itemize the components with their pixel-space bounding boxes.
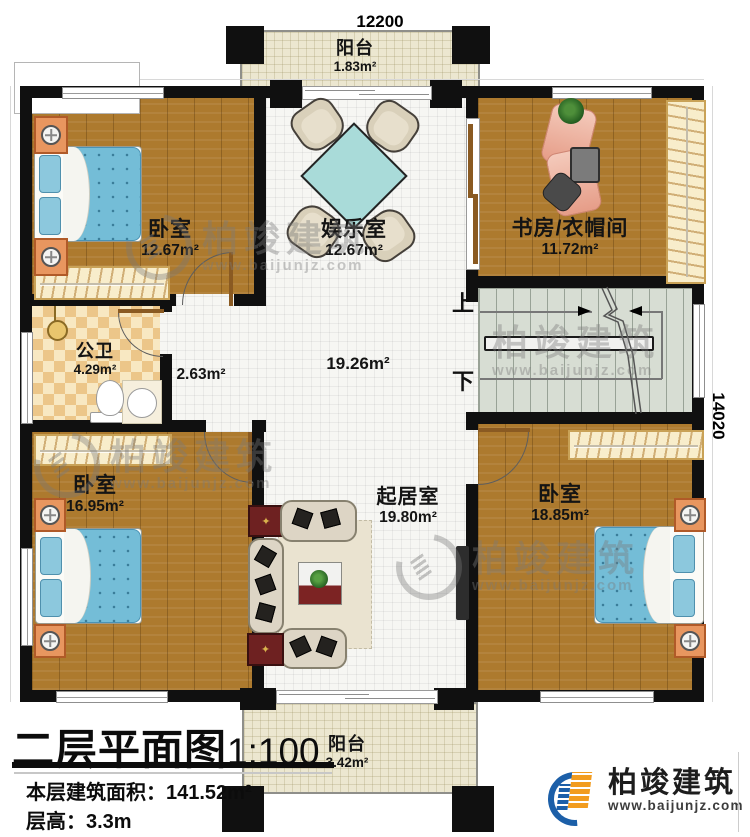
room-area: 12.67m² — [141, 242, 199, 260]
room-label-study: 书房/衣帽间 11.72m² — [512, 217, 629, 259]
column — [452, 786, 494, 832]
wardrobe — [34, 434, 172, 466]
floor-area-value: 141.52m² — [166, 782, 252, 804]
lamp-icon — [40, 631, 60, 651]
room-name: 书房/衣帽间 — [512, 217, 629, 241]
window — [552, 87, 652, 99]
window — [56, 691, 168, 703]
pillow — [39, 197, 61, 235]
dimension-right: 14020 — [708, 366, 728, 466]
pillow — [40, 579, 62, 617]
wall-segment — [254, 86, 266, 306]
toilet — [96, 380, 124, 416]
sofa-single — [280, 628, 347, 669]
room-label-hall: 19.26m² — [326, 354, 389, 374]
door-leaf — [478, 428, 530, 432]
door-leaf — [473, 194, 478, 264]
wardrobe-rail — [40, 283, 164, 285]
door-leaf — [468, 124, 473, 198]
room-area: 2.63m² — [176, 366, 225, 384]
brand-name: 柏竣建筑 — [608, 768, 744, 798]
nightstand — [34, 498, 66, 532]
room-area: 19.26m² — [326, 354, 389, 374]
room-label-bedroom-topleft: 卧室 12.67m² — [141, 218, 199, 260]
room-label-entertainment: 娱乐室 12.67m² — [321, 218, 387, 260]
nightstand — [34, 238, 68, 276]
lamp-icon — [40, 505, 60, 525]
plant-icon — [558, 98, 584, 124]
cushion — [255, 574, 277, 596]
nightstand — [34, 624, 66, 658]
floor-area-line: 本层建筑面积：141.52m² — [26, 776, 252, 805]
cushion — [255, 602, 276, 623]
floor-height-label: 层高： — [26, 811, 86, 833]
room-name: 卧室 — [531, 483, 589, 507]
column — [270, 80, 302, 108]
wardrobe-rail — [686, 107, 688, 276]
sliding-door — [276, 690, 438, 704]
window — [62, 87, 164, 99]
wall-segment — [466, 412, 478, 430]
room-area: 16.95m² — [66, 498, 124, 516]
lamp-icon — [680, 505, 700, 525]
bed — [34, 146, 142, 242]
wardrobe — [666, 100, 706, 284]
cushion — [316, 636, 338, 658]
room-area: 19.80m² — [377, 509, 440, 527]
sheet-fold — [643, 527, 670, 623]
tv — [456, 546, 469, 620]
window — [540, 691, 654, 703]
window — [21, 548, 33, 646]
floor-height-line: 层高：3.3m — [26, 805, 132, 834]
room-label-bedroom-bottomleft: 卧室 16.95m² — [66, 474, 124, 516]
cushion — [292, 508, 314, 530]
room-name: 卧室 — [66, 474, 124, 498]
column — [434, 688, 474, 710]
cushion — [289, 635, 312, 658]
brand-footer: 柏竣建筑 www.baijunjz.com — [548, 768, 744, 824]
room-area: 4.29m² — [74, 362, 117, 378]
title-underline-thin — [14, 772, 332, 774]
break-arrow-icon — [578, 306, 591, 316]
pillow — [39, 155, 61, 193]
door-leaf — [229, 252, 233, 306]
lamp-icon — [680, 631, 700, 651]
pillow — [673, 579, 695, 617]
stairs-up-label: 上 — [452, 286, 474, 318]
nightstand — [34, 116, 68, 154]
door-leaf — [118, 309, 164, 313]
column — [240, 688, 276, 710]
room-name: 阳台 — [326, 734, 369, 755]
stairs-down-label: 下 — [452, 364, 474, 396]
room-area: 1.83m² — [334, 59, 377, 75]
footer-divider — [738, 752, 739, 832]
wardrobe-rail — [40, 450, 166, 452]
wardrobe-rail — [574, 445, 698, 447]
bed — [594, 526, 704, 624]
room-label-living: 起居室 19.80m² — [377, 486, 440, 527]
floor-height-value: 3.3m — [86, 811, 132, 833]
side-table: ✦ — [248, 505, 284, 537]
sofa-single — [280, 500, 357, 542]
room-name: 起居室 — [377, 486, 440, 509]
room-name: 娱乐室 — [321, 218, 387, 242]
side-table: ✦ — [247, 633, 284, 666]
break-arrow-icon — [629, 306, 642, 316]
column — [452, 26, 490, 64]
window — [21, 332, 33, 424]
brand-website: www.baijunjz.com — [608, 798, 744, 813]
title-underline — [12, 762, 334, 768]
dimension-top: 12200 — [330, 12, 430, 32]
nightstand — [674, 624, 706, 658]
room-label-corridor: 2.63m² — [176, 366, 225, 384]
room-area: 12.67m² — [321, 242, 387, 260]
room-label-bedroom-bottomright: 卧室 18.85m² — [531, 483, 589, 525]
monitor-icon — [570, 147, 600, 183]
nightstand — [674, 498, 706, 532]
room-area: 18.85m² — [531, 507, 589, 525]
room-name: 阳台 — [334, 38, 377, 59]
pillow — [40, 537, 62, 575]
wall-segment — [466, 86, 478, 120]
cushion — [254, 545, 277, 568]
room-name: 公卫 — [74, 341, 117, 362]
pillow — [673, 535, 695, 573]
lamp-icon — [41, 247, 61, 267]
room-name: 卧室 — [141, 218, 199, 242]
door-leaf — [248, 432, 252, 484]
wall-segment — [234, 294, 266, 306]
floor-area-label: 本层建筑面积： — [26, 782, 166, 804]
wardrobe — [568, 430, 704, 460]
plant-icon — [310, 570, 328, 588]
bed — [35, 528, 142, 624]
brand-logo-icon — [548, 768, 600, 824]
room-label-bathroom: 公卫 4.29m² — [74, 341, 117, 377]
sofa-long — [248, 538, 284, 634]
lamp-icon — [41, 125, 61, 145]
floor-plan-page: ✦ ✦ 阳台 1.83m² 卧室 12.67m² 娱乐室 12.67m² 书房/… — [0, 0, 750, 837]
sink — [127, 388, 157, 418]
cushion — [320, 508, 341, 529]
room-area: 11.72m² — [512, 241, 629, 259]
column — [430, 80, 462, 108]
column — [226, 26, 264, 64]
shower-head-icon — [47, 320, 68, 341]
offset-line — [10, 86, 11, 702]
room-label-balcony-top: 阳台 1.83m² — [334, 38, 377, 74]
